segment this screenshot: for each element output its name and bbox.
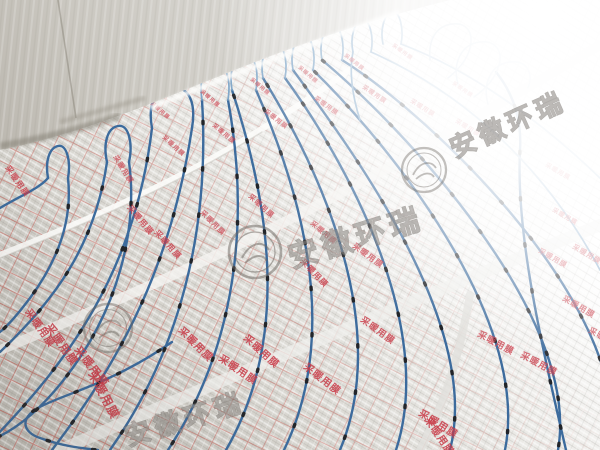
photo-floor-heating-installation: 采暖用膜采暖用膜采暖用膜采暖用膜采暖用膜采暖用膜采暖用膜采暖用膜采暖用膜采暖用膜…	[0, 0, 600, 450]
photo-canvas: 采暖用膜采暖用膜采暖用膜采暖用膜采暖用膜采暖用膜采暖用膜采暖用膜采暖用膜采暖用膜…	[0, 0, 600, 450]
light-wash	[0, 0, 600, 450]
